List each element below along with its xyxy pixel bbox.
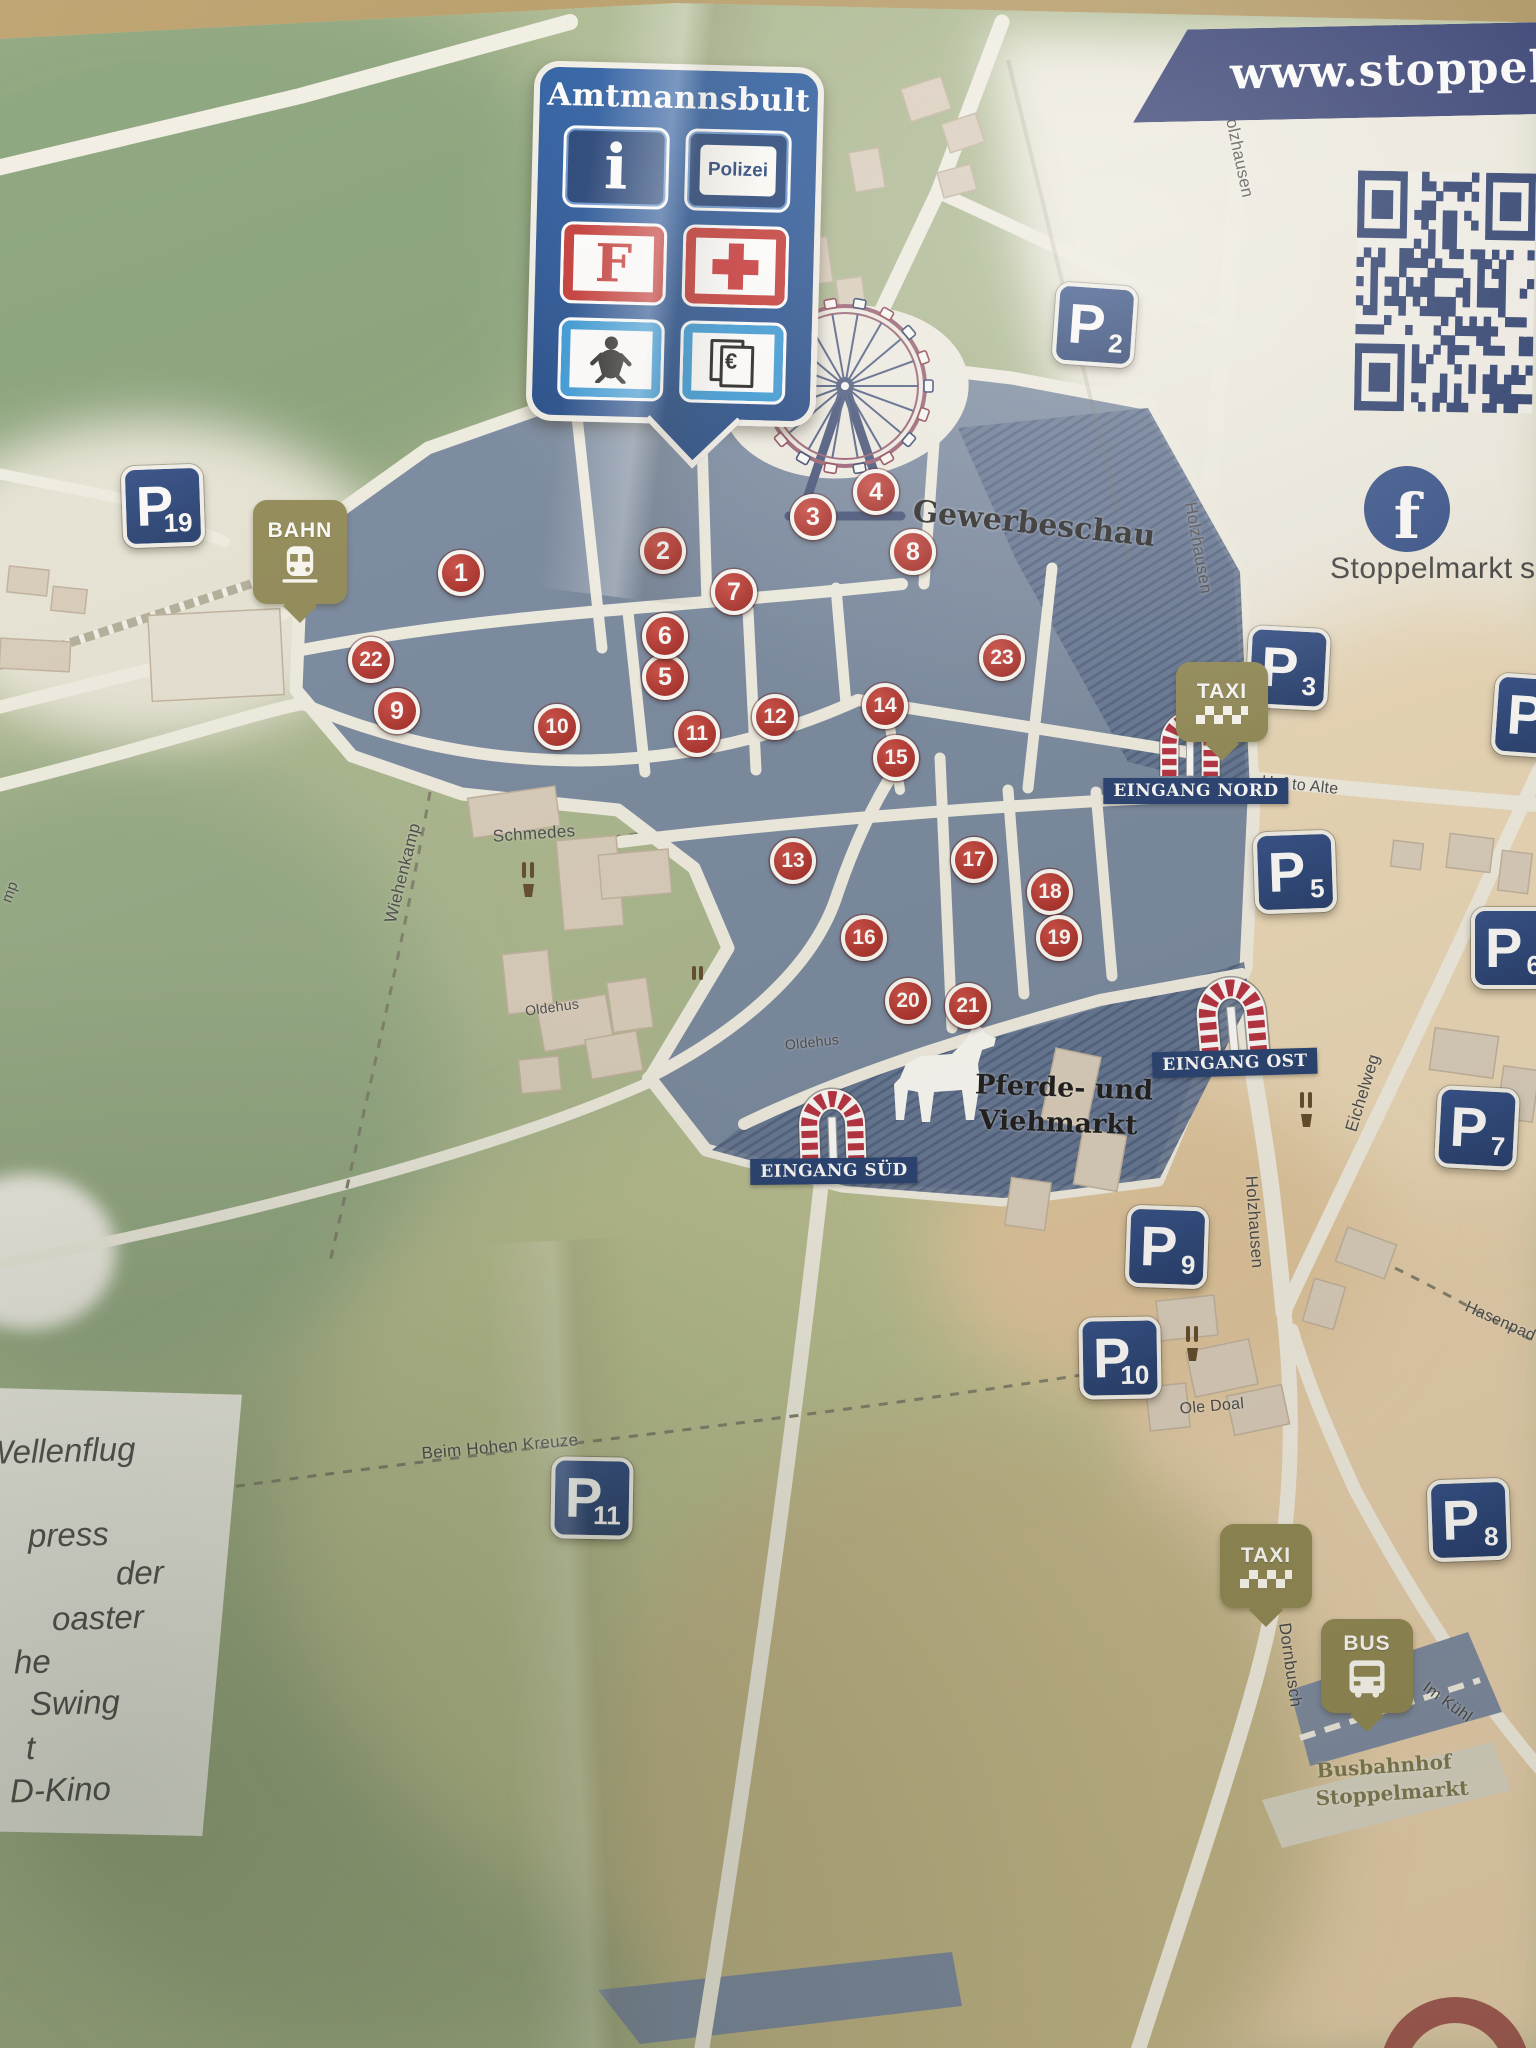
photo-lighting-overlay [0, 0, 1536, 2048]
map-photo: HolzhausenHolzhausenHolzhausenHof to Alt… [0, 0, 1536, 2048]
